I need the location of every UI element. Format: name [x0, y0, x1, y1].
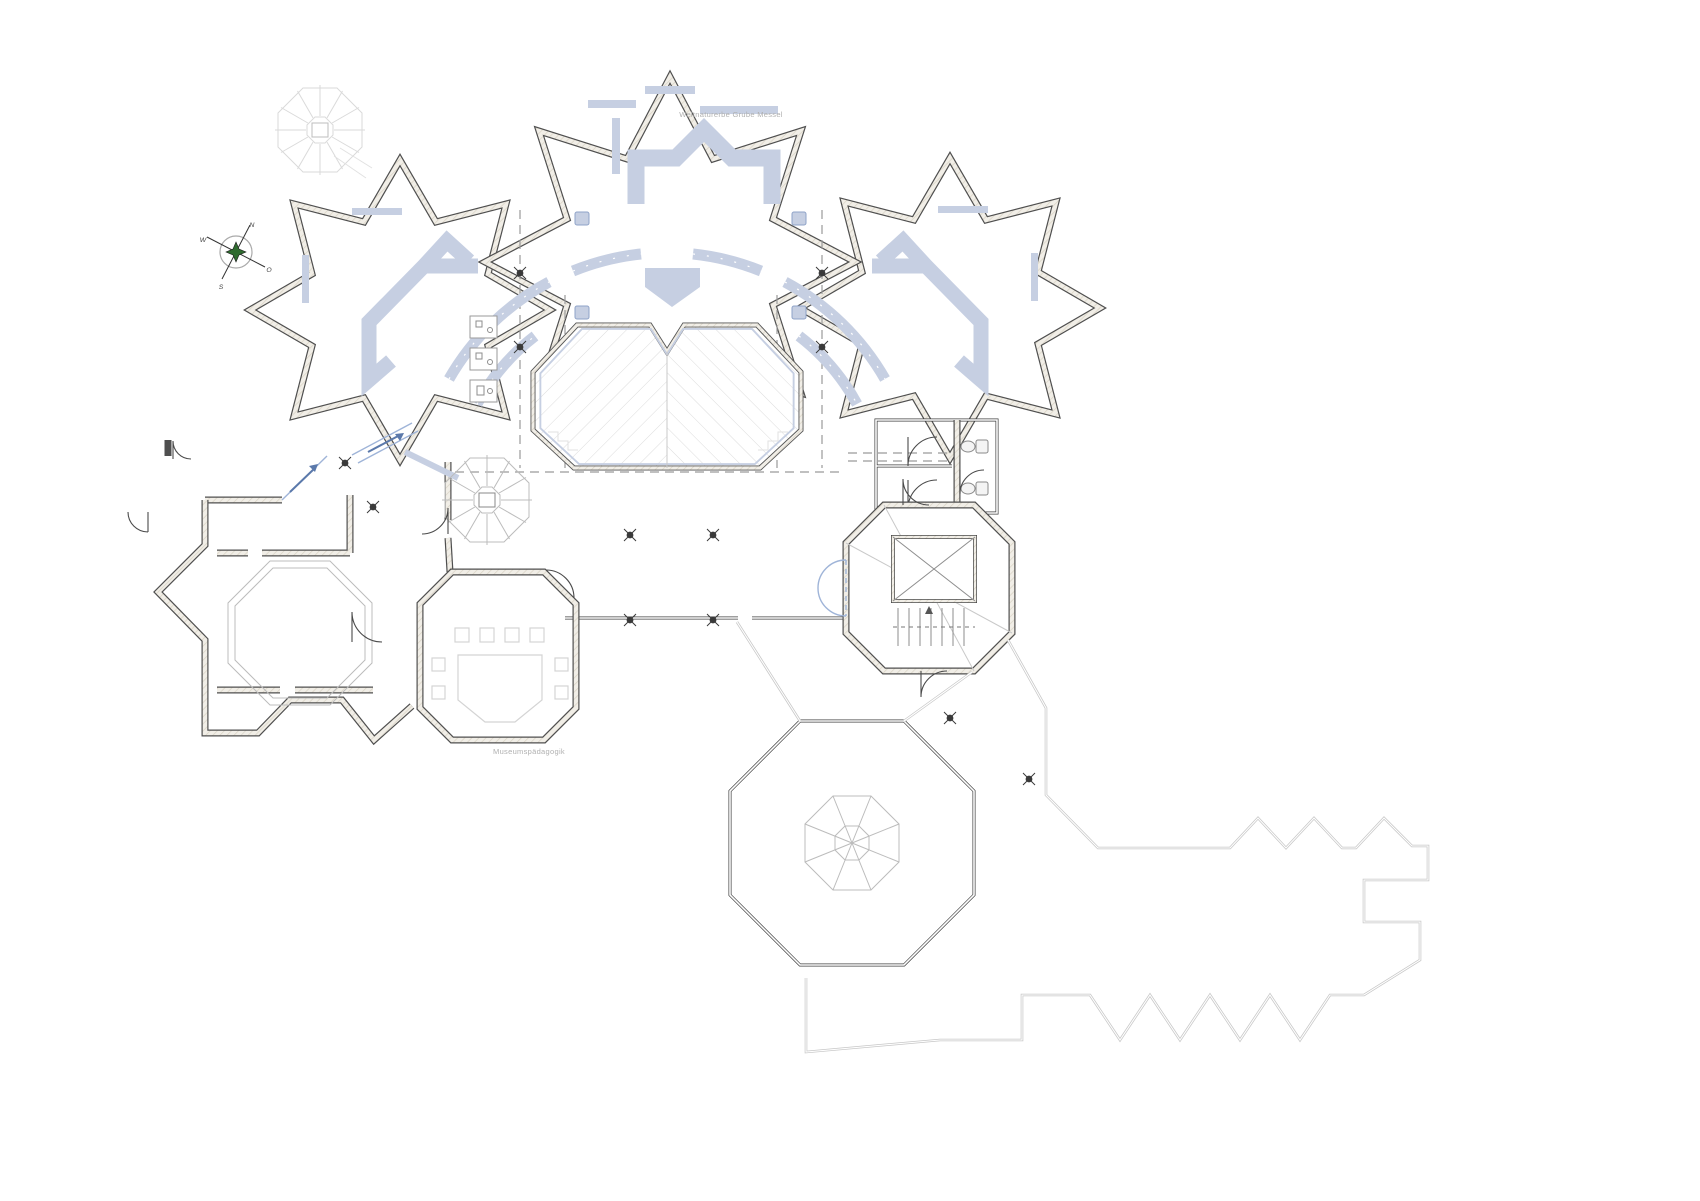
stair-tower: [818, 479, 1012, 697]
spiral-stair-northwest: [275, 85, 372, 178]
toilet-fixtures: [961, 440, 988, 495]
compass-w: W: [200, 237, 207, 244]
foyer-corridor: [565, 529, 846, 626]
hall-east: [800, 158, 1100, 458]
compass-s: S: [219, 284, 224, 291]
spiral-stair-main: [442, 455, 532, 545]
elevator: [893, 537, 975, 601]
floor-plan-page: Museumspädagogik: [0, 0, 1700, 1201]
compass-n: N: [250, 222, 255, 229]
skylight: [805, 796, 899, 890]
floor-plan-drawing: Museumspädagogik: [0, 0, 1700, 1201]
west-wing: [158, 423, 458, 740]
museum-education-label: Museumspädagogik: [493, 747, 565, 756]
seminar-table: [432, 628, 568, 722]
inner-octagon-room: [228, 561, 372, 705]
compass-rose: N O S W: [200, 222, 273, 291]
site-label: Weltnaturerbe Grube Messel: [679, 110, 783, 119]
compass-needle: [226, 242, 246, 262]
compass-e: O: [266, 267, 272, 274]
ramp-lower: [282, 456, 327, 500]
display-cases: [470, 316, 497, 402]
museum-education-room: Museumspädagogik: [420, 572, 576, 756]
